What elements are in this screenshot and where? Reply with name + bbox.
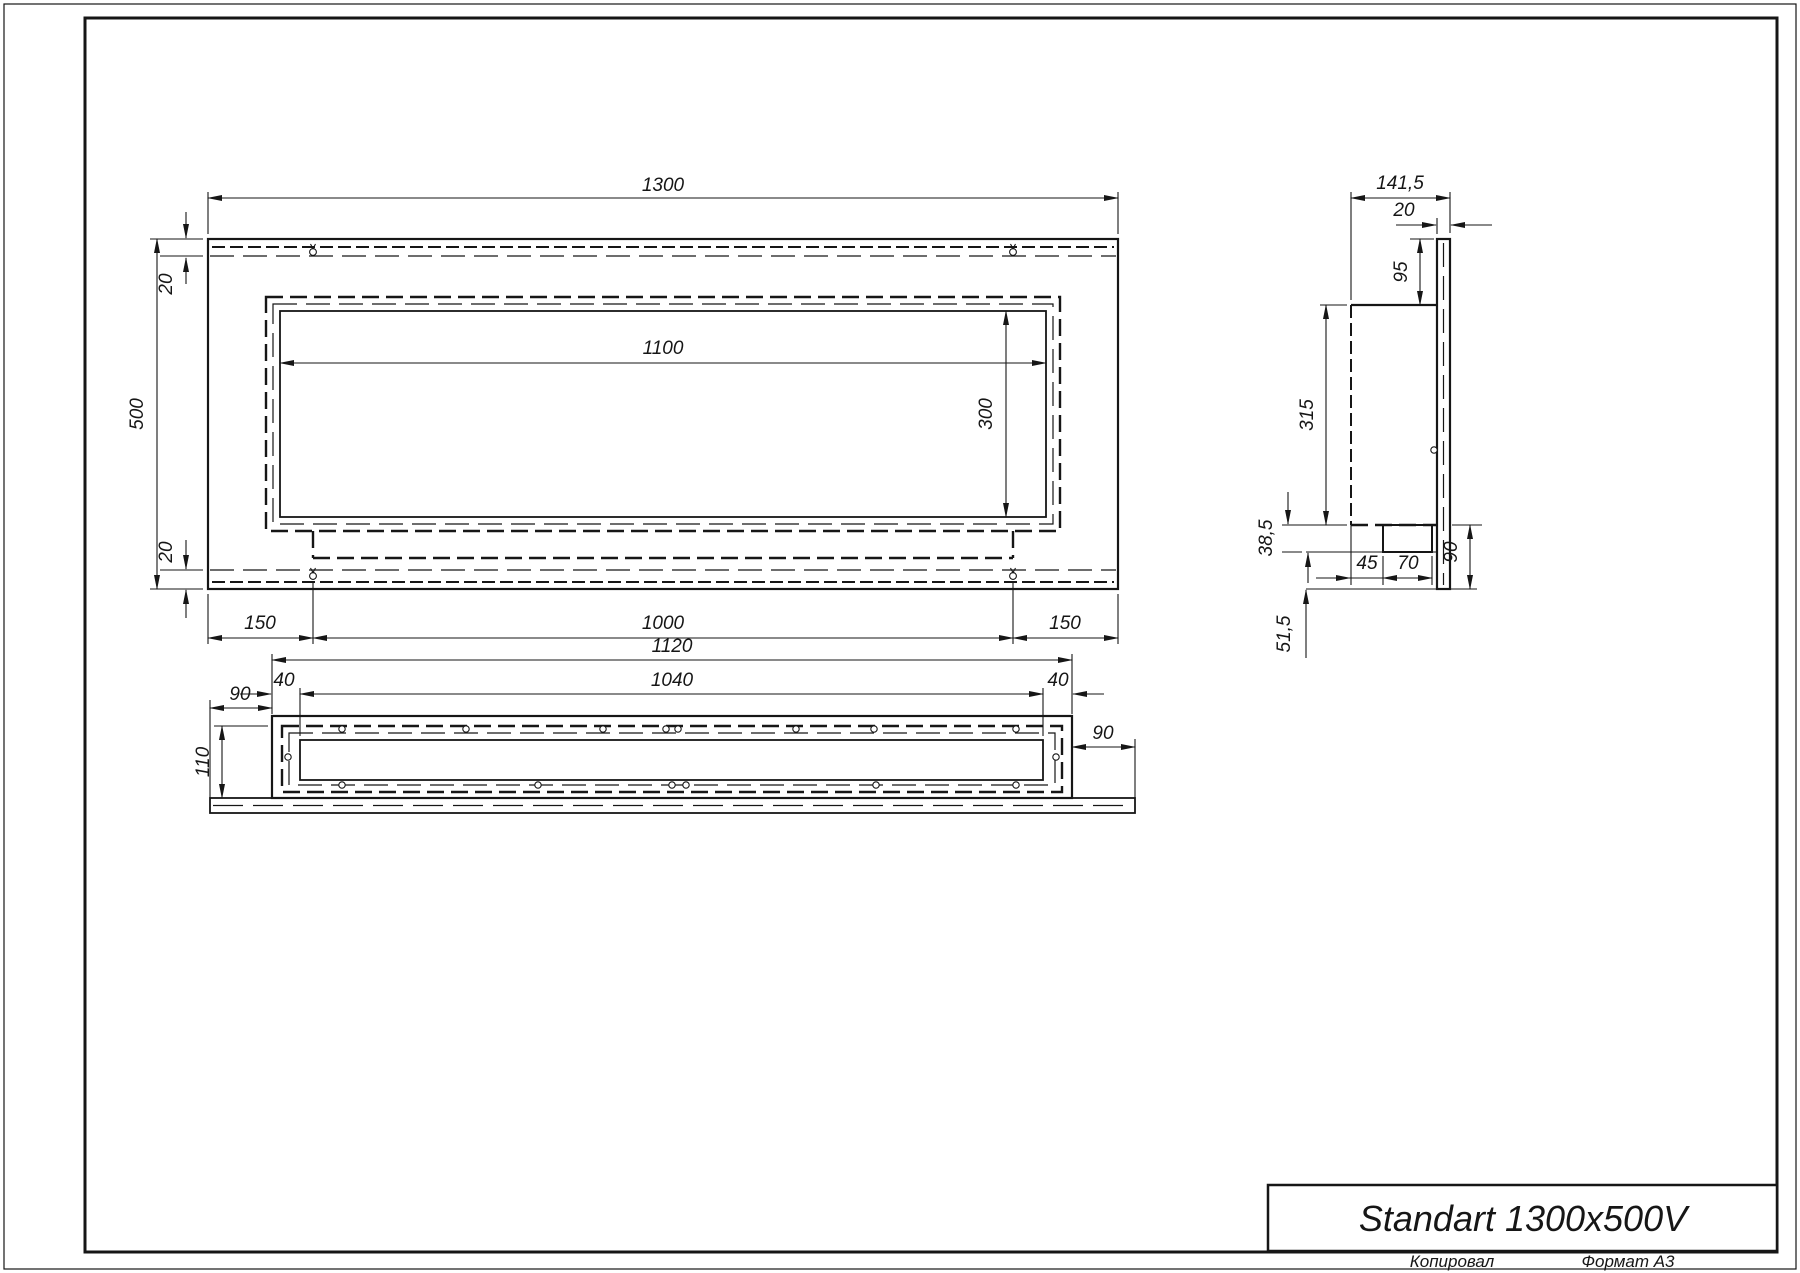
dim-side-depth: 141,5 bbox=[1376, 173, 1424, 194]
dim-opening-width: 1100 bbox=[643, 338, 684, 359]
sheet-edge bbox=[4, 4, 1796, 1269]
dim-front-margin-right: 150 bbox=[1049, 613, 1081, 634]
label-copied: Копировал bbox=[1410, 1252, 1495, 1271]
dim-front-bottom-center: 1000 bbox=[642, 613, 685, 634]
front-view: 1300 500 20 20 1100 300 150 1000 150 bbox=[127, 175, 1118, 644]
dim-side-band: 38,5 bbox=[1256, 519, 1277, 556]
dim-opening-height: 300 bbox=[976, 398, 997, 430]
burner-block bbox=[1383, 525, 1432, 552]
dim-side-box-height: 315 bbox=[1297, 399, 1318, 431]
dim-bottom-overhang-right: 90 bbox=[1092, 723, 1114, 744]
dim-front-flange-top: 20 bbox=[156, 273, 177, 296]
drawing-frame bbox=[85, 18, 1777, 1252]
screw-hole bbox=[285, 726, 1059, 788]
technical-drawing: 1300 500 20 20 1100 300 150 1000 150 bbox=[0, 0, 1800, 1273]
dim-side-bottom-offset: 51,5 bbox=[1274, 615, 1295, 652]
dim-front-flange-bottom: 20 bbox=[156, 541, 177, 564]
title-model: Standart 1300x500V bbox=[1359, 1198, 1690, 1239]
dim-bottom-depth: 110 bbox=[193, 746, 214, 777]
dim-front-height: 500 bbox=[127, 398, 148, 430]
label-format: Формат А3 bbox=[1581, 1252, 1675, 1271]
dim-side-offset45: 45 bbox=[1356, 553, 1378, 574]
dim-front-width: 1300 bbox=[642, 175, 685, 196]
panel-hole bbox=[1431, 447, 1437, 453]
dim-front-margin-left: 150 bbox=[244, 613, 276, 634]
dim-side-top-offset: 95 bbox=[1391, 261, 1412, 283]
dim-bottom-inner-length: 1040 bbox=[651, 670, 694, 691]
dim-bottom-margin-right: 40 bbox=[1047, 670, 1069, 691]
side-view: 141,5 20 95 315 38,5 51,5 45 70 bbox=[1256, 173, 1492, 658]
drawing-sheet: 1300 500 20 20 1100 300 150 1000 150 bbox=[0, 0, 1800, 1273]
dim-bottom-length: 1120 bbox=[652, 636, 693, 657]
dim-bottom-margin-left: 40 bbox=[273, 670, 295, 691]
dim-bottom-overhang-left: 90 bbox=[229, 684, 251, 705]
dim-side-panel: 20 bbox=[1392, 200, 1415, 221]
dim-side-burner: 70 bbox=[1397, 553, 1419, 574]
keyhole-hole bbox=[310, 244, 1017, 579]
dim-side-overhang: 90 bbox=[1441, 541, 1462, 563]
title-block: Standart 1300x500V Копировал Формат А3 bbox=[1268, 1185, 1777, 1271]
bottom-view: 1120 1040 40 40 90 90 110 bbox=[193, 636, 1135, 813]
